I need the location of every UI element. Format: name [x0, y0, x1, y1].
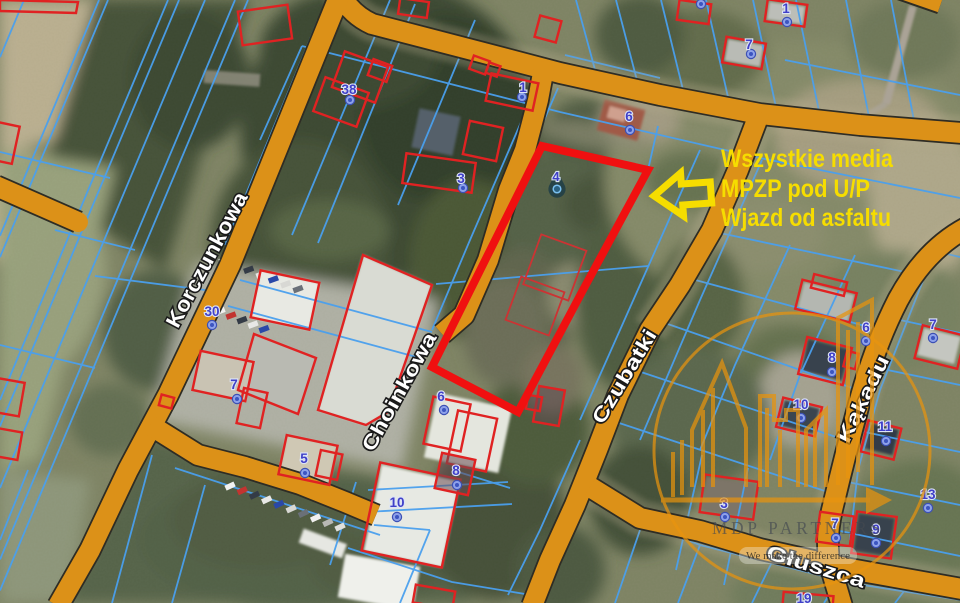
- svg-text:38: 38: [341, 82, 357, 97]
- svg-text:10: 10: [389, 495, 404, 510]
- svg-text:4: 4: [552, 169, 560, 184]
- svg-text:6: 6: [437, 389, 445, 404]
- svg-text:30: 30: [204, 304, 219, 319]
- svg-text:Wjazd od asfaltu: Wjazd od asfaltu: [721, 204, 891, 232]
- svg-text:7: 7: [230, 377, 238, 392]
- svg-text:6: 6: [625, 109, 633, 124]
- svg-text:8: 8: [452, 463, 460, 478]
- svg-text:5: 5: [300, 451, 308, 466]
- svg-text:7: 7: [929, 317, 937, 332]
- svg-text:MPZP pod U/P: MPZP pod U/P: [721, 175, 870, 203]
- svg-text:We make the difference: We make the difference: [746, 550, 850, 562]
- svg-text:3: 3: [457, 171, 465, 186]
- svg-text:11: 11: [878, 419, 893, 434]
- svg-text:1: 1: [782, 1, 790, 16]
- svg-text:8: 8: [828, 350, 836, 365]
- svg-text:Wszystkie media: Wszystkie media: [721, 145, 894, 173]
- svg-text:19: 19: [796, 591, 811, 603]
- svg-text:7: 7: [745, 37, 753, 52]
- svg-text:1: 1: [519, 80, 527, 95]
- svg-text:MDP PARTNERS: MDP PARTNERS: [712, 518, 884, 538]
